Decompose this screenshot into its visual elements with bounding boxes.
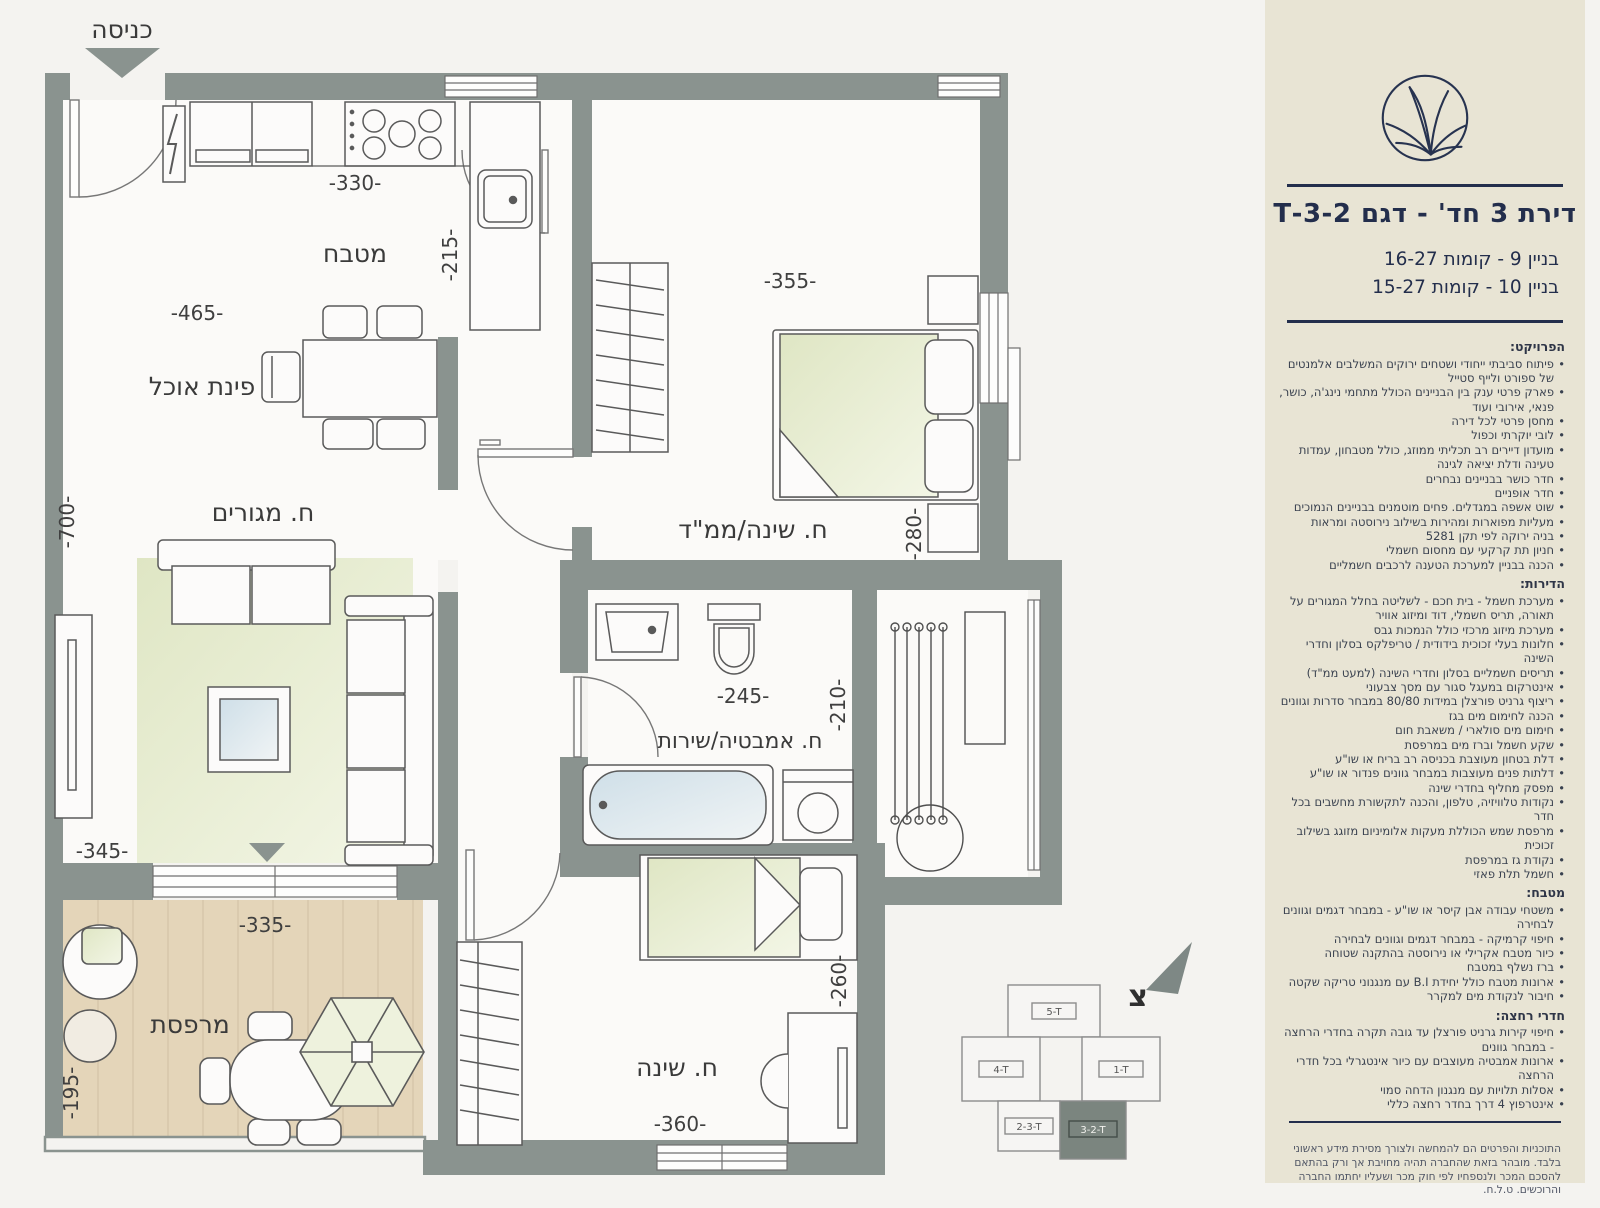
dim-245: -245-	[717, 684, 770, 708]
north-letter: צ	[1128, 979, 1148, 1014]
spec-item: מערכת מיזוג מרכזי כולל הנמכות גבס	[1279, 623, 1565, 637]
info-panel: דירת 3 חד' - דגם 3-2-T בניין 9 - קומות 1…	[1265, 0, 1585, 1183]
keyplan-unit-1T: 1-T	[1113, 1065, 1129, 1076]
spec-item: הכנה לחימום מים בגז	[1279, 709, 1565, 723]
spec-item: חדר אופניים	[1279, 486, 1565, 500]
dining-table	[303, 340, 437, 417]
spec-item: מחסן פרטי לכל דירה	[1279, 414, 1565, 428]
spec-list: מערכת חשמל - בית חכם - לשליטה בחלל המגור…	[1279, 594, 1565, 882]
apartment-title: דירת 3 חד' - דגם 3-2-T	[1265, 199, 1585, 229]
entrance-label: כניסה	[91, 15, 152, 44]
closet	[457, 942, 522, 1145]
label-kitchen: מטבח	[323, 239, 387, 268]
spec-item: אינטרקום במעגל סגור עם מסך צבעוני	[1279, 680, 1565, 694]
dim-465: -465-	[171, 301, 224, 325]
label-bath: ח. אמבטיה/שירות	[657, 729, 822, 754]
spec-item: חיפוי קירות גרניט פורצלן עד גובה תקרה בח…	[1279, 1025, 1565, 1054]
spec-item: מועדון דיירים רב תכליתי ממוזג, כולל מטבח…	[1279, 443, 1565, 472]
spec-item: אסלות תלויות עם מנגנון הדחה סמוי	[1279, 1083, 1565, 1097]
spec-item: ברז נשלף במטבח	[1279, 960, 1565, 974]
page: כניסה צ 5-T 4-T 1-T 2-3-T 3-	[0, 0, 1600, 1208]
keyplan-unit-32T: 3-2-T	[1080, 1125, 1106, 1136]
label-bed2: ח. שינה	[636, 1053, 718, 1082]
dim-335: -335-	[239, 913, 292, 937]
spec-item: כיור מטבח אקרילי או נירוסטה בהתקנה שטוחה	[1279, 946, 1565, 960]
spec-item: דלת בטחון מעוצבת בכניסה רב בריח או שו"ע	[1279, 752, 1565, 766]
spec-item: מערכת חשמל - בית חכם - לשליטה בחלל המגור…	[1279, 594, 1565, 623]
spec-item: ארונות אמבטיה מעוצבים עם כיור אינטגרלי ב…	[1279, 1054, 1565, 1083]
spec-list: משטחי עבודה אבן קיסר או שו"ע - במבחר דגמ…	[1279, 903, 1565, 1004]
spec-item: חימום מים סולארי / משאבת חום	[1279, 723, 1565, 737]
dim-700: -700-	[55, 496, 79, 549]
sofa-two-seat	[158, 540, 335, 624]
spec-item: חדר כושר בבניינים נבחרים	[1279, 472, 1565, 486]
tv-icon	[68, 640, 76, 790]
spec-item: דלתות פנים מעוצבות במבחר גוונים פנדור או…	[1279, 766, 1565, 780]
spec-section-heading: חדרי רחצה:	[1279, 1008, 1565, 1024]
label-dining: פינת אוכל	[149, 372, 256, 401]
disclaimer-text: התוכניות והפרטים הם להמחשה ולצורך מסירת …	[1265, 1134, 1585, 1198]
dim-280: -280-	[902, 508, 926, 561]
spec-section-heading: הפרויקט:	[1279, 339, 1565, 355]
balcony-railing	[45, 1137, 425, 1151]
spec-item: פארק פרטי ענק בין הבניינים הכולל מתחמי נ…	[1279, 385, 1565, 414]
spec-list: פיתוח סביבתי ייחודי ושטחים ירוקים המשלבי…	[1279, 357, 1565, 573]
spec-item: מפסק מחליף בחדרי שינה	[1279, 781, 1565, 795]
spec-list: חיפוי קירות גרניט פורצלן עד גובה תקרה בח…	[1279, 1025, 1565, 1111]
bathtub-icon	[583, 765, 773, 845]
dim-360: -360-	[654, 1112, 707, 1136]
spec-section-heading: הדירות:	[1279, 576, 1565, 592]
keyplan-unit-4T: 4-T	[993, 1065, 1009, 1076]
floor-plan: כניסה צ 5-T 4-T 1-T 2-3-T 3-	[0, 0, 1240, 1208]
bathroom-sink-icon	[596, 604, 678, 660]
washing-machine-icon	[783, 770, 853, 840]
dim-345: -345-	[76, 839, 129, 863]
dim-195: -195-	[59, 1067, 83, 1120]
building-info: בניין 9 - קומות 16-27 בניין 10 - קומות 1…	[1265, 246, 1585, 302]
spec-item: חשמל תלת פאזי	[1279, 867, 1565, 881]
dim-215: -215-	[438, 229, 462, 282]
divider-bottom	[1289, 1121, 1561, 1123]
sofa-side	[345, 596, 433, 865]
spec-item: בניה ירוקה לפי תקן 5281	[1279, 529, 1565, 543]
label-living: ח. מגורים	[212, 498, 315, 527]
single-bed	[640, 855, 857, 960]
spec-item: מעליות מפוארות ומהירות בשילוב נירוסטה ומ…	[1279, 515, 1565, 529]
spec-item: פיתוח סביבתי ייחודי ושטחים ירוקים המשלבי…	[1279, 357, 1565, 386]
spec-item: חלונות בעלי זכוכית בידודית / טריפלקס בסל…	[1279, 637, 1565, 666]
dim-355: -355-	[764, 269, 817, 293]
building-line-1: בניין 9 - קומות 16-27	[1265, 246, 1585, 274]
spec-item: אינטרפוץ 4 דרך בחדר רחצה כללי	[1279, 1097, 1565, 1111]
spec-item: חיפוי קרמיקה - במבחר דגמים וגוונים לבחיר…	[1279, 932, 1565, 946]
side-table	[64, 1010, 116, 1062]
north-marker: צ	[1128, 942, 1192, 1014]
spec-item: משטחי עבודה אבן קיסר או שו"ע - במבחר דגמ…	[1279, 903, 1565, 932]
entrance-marker: כניסה	[85, 15, 160, 78]
label-master: ח. שינה/ממ"ד	[678, 515, 827, 544]
spec-item: חיבור לנקודת מים למקרר	[1279, 989, 1565, 1003]
label-balcony: מרפסת	[150, 1010, 229, 1039]
dim-260: -260-	[827, 955, 851, 1008]
spec-item: נקודת גז במרפסת	[1279, 853, 1565, 867]
spec-item: ארונות מטבח כולל יחידת B.I עם מנגנוני טר…	[1279, 975, 1565, 989]
dim-330: -330-	[329, 171, 382, 195]
spec-item: חניון תת קרקעי עם מחסום חשמלי	[1279, 543, 1565, 557]
divider-top	[1287, 184, 1563, 187]
closet	[592, 263, 668, 452]
keyplan-unit-5T: 5-T	[1046, 1007, 1062, 1018]
spec-item: מרפסת שמש הכוללת מעקות אלומיניום מזוגג ב…	[1279, 824, 1565, 853]
spec-item: ריצוף גרניט פורצלן במידות 80/80 במבחר סד…	[1279, 694, 1565, 708]
leaf-logo-icon	[1377, 70, 1473, 166]
north-arrow-icon	[1146, 942, 1192, 994]
spec-item: נקודות טלוויזיה, טלפון, והכנה לתקשורת מח…	[1279, 795, 1565, 824]
spec-item: שוט אשפה במגדלים. פחים מוטמנים בבניינים …	[1279, 500, 1565, 514]
spec-item: הכנה בבניין למערכת הטענה לרכבים חשמליים	[1279, 558, 1565, 572]
kitchen-sink-icon	[478, 170, 532, 228]
spec-item: לובי יוקרתי וכפול	[1279, 428, 1565, 442]
coffee-table	[208, 687, 290, 772]
logo	[1265, 0, 1585, 166]
keyplan-unit-23T: 2-3-T	[1016, 1122, 1042, 1133]
nightstand	[928, 504, 978, 552]
entrance-arrow-icon	[85, 48, 160, 78]
double-bed	[773, 330, 978, 500]
dim-210: -210-	[826, 679, 850, 732]
nightstand	[928, 276, 978, 324]
stove-icon	[345, 102, 455, 166]
spec-section-heading: מטבח:	[1279, 885, 1565, 901]
building-line-2: בניין 10 - קומות 15-27	[1265, 274, 1585, 302]
spec-item: תריסים חשמליים בסלון וחדרי השינה (למעט מ…	[1279, 666, 1565, 680]
spec-item: שקע חשמל וברז מים במרפסת	[1279, 738, 1565, 752]
spec-sections: הפרויקט:פיתוח סביבתי ייחודי ושטחים ירוקי…	[1265, 323, 1585, 1112]
lounge-chair	[63, 925, 137, 999]
electrical-panel-icon	[163, 106, 185, 182]
